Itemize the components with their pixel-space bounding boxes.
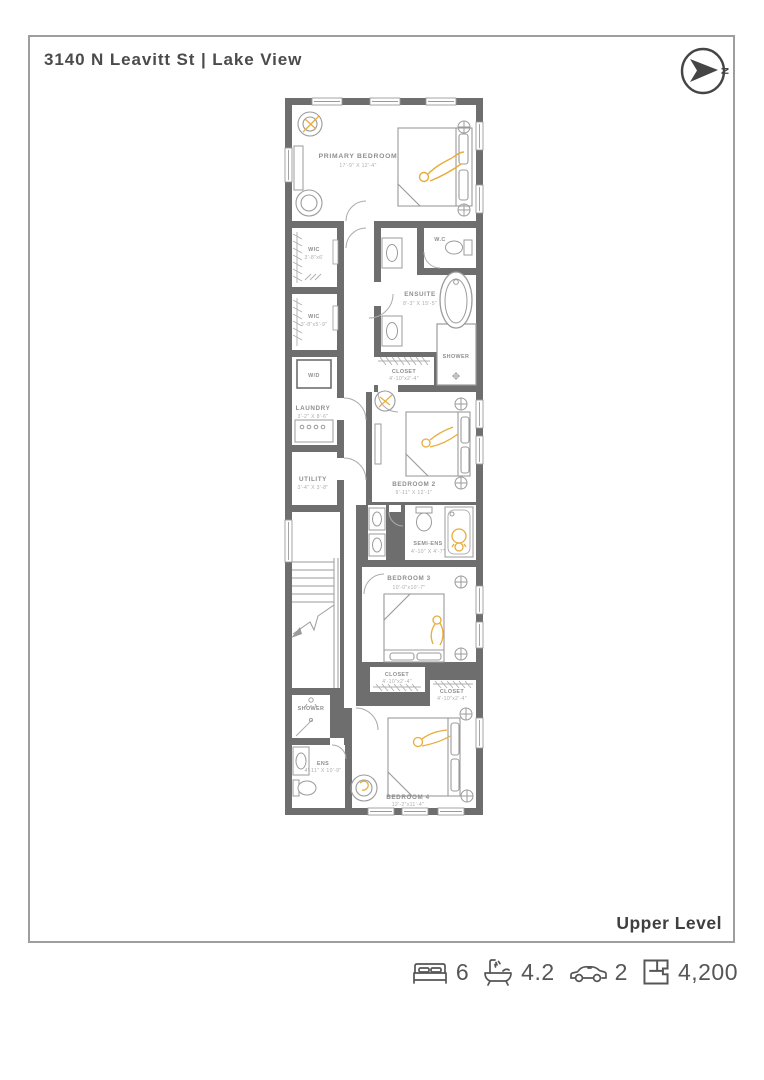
car-icon (568, 959, 608, 985)
floorplan-icon (641, 957, 671, 987)
label-bedroom-2: BEDROOM 2 (392, 481, 436, 488)
wc-wall-h (417, 268, 476, 275)
stats-row: 6 4.2 2 4,200 (411, 957, 738, 987)
label-bedroom-3: BEDROOM 3 (387, 575, 431, 582)
level-label: Upper Level (616, 913, 722, 934)
dims-wic-2: 3'-8"x5'-9" (301, 322, 328, 328)
label-ensuite: ENSUITE (404, 291, 436, 298)
dims-closet-bedroom2: 4'-10"x2'-4" (389, 376, 419, 382)
dims-bedroom-4: 12'-2"x11'-4" (392, 802, 425, 808)
dims-bedroom-2: 9'-11" X 12'-1" (396, 490, 433, 496)
ensuite-vanity-1 (382, 238, 402, 268)
bathtub (440, 272, 472, 328)
bed-bedroom4 (388, 718, 460, 796)
stat-baths: 4.2 (482, 957, 554, 987)
dims-bedroom-3: 10'-0"x10'-7" (393, 585, 426, 591)
dims-semi-ens: 4'-10" X 4'-7" (411, 549, 445, 555)
label-laundry: LAUNDRY (296, 405, 331, 412)
cars-count: 2 (615, 959, 628, 986)
label-shower-lower: SHOWER (298, 706, 325, 712)
bed-bedroom3 (384, 594, 444, 662)
label-ens: ENS (317, 761, 329, 767)
label-wd: W/D (308, 373, 320, 379)
area-value: 4,200 (678, 959, 738, 986)
dims-wic-1: 3'-8"x6' (304, 255, 323, 261)
room-shower-lower (292, 695, 330, 738)
dims-closet-bedroom3: 4'-10"x2'-4" (382, 679, 412, 685)
wc-wall-v (417, 228, 424, 275)
semi-ens-shower (445, 507, 473, 557)
label-primary-bedroom: PRIMARY BEDROOM (319, 153, 398, 160)
baths-count: 4.2 (521, 959, 554, 986)
label-bedroom-4: BEDROOM 4 (386, 794, 430, 801)
hall-lower (344, 505, 356, 708)
dims-ens: 4'-11" X 10'-9" (305, 768, 342, 774)
label-closet-bedroom3: CLOSET (385, 672, 410, 678)
stat-cars: 2 (568, 959, 628, 986)
label-closet-bedroom4: CLOSET (440, 689, 465, 695)
dresser-primary (294, 146, 303, 190)
dims-ensuite: 8'-3" X 15'-5" (403, 301, 437, 307)
label-semi-ens: SEMI-ENS (413, 541, 442, 547)
primary-bed (398, 128, 472, 206)
dims-utility: 3'-4" X 3'-8" (298, 485, 329, 491)
label-wic-2: WIC (308, 314, 320, 320)
bed-bedroom2 (406, 412, 470, 476)
label-shower-ensuite: SHOWER (443, 354, 470, 360)
stat-area: 4,200 (641, 957, 738, 987)
stat-beds: 6 (411, 959, 469, 986)
bath-icon (482, 957, 514, 987)
dims-closet-bedroom4: 4'-10"x2'-4" (437, 696, 467, 702)
dims-laundry: 3'-2" X 8'-6" (298, 414, 329, 420)
ensuite-vanity-2 (382, 316, 402, 346)
laundry-appliance (295, 420, 333, 442)
bed-icon (411, 959, 449, 986)
beds-count: 6 (456, 959, 469, 986)
dims-primary-bedroom: 17'-9" X 12'-4" (339, 163, 376, 169)
room-stairs (292, 512, 340, 688)
label-wic-1: WIC (308, 247, 320, 253)
wc-toilet (446, 240, 473, 255)
label-wc: W.C (434, 237, 445, 243)
hall-upper (344, 221, 374, 392)
label-utility: UTILITY (299, 476, 327, 483)
semi-ens-toilet (416, 507, 432, 531)
dresser-bedroom2 (375, 424, 381, 464)
ens-toilet (293, 780, 316, 796)
label-closet-bedroom2: CLOSET (392, 369, 417, 375)
